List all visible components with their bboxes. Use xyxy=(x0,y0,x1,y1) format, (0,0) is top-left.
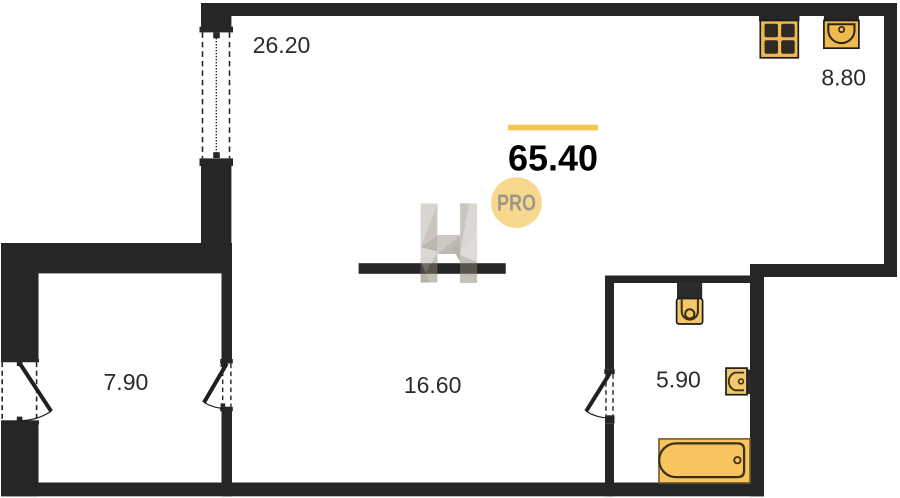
svg-text:7.90: 7.90 xyxy=(104,369,149,395)
svg-text:PRO: PRO xyxy=(497,190,536,216)
svg-text:16.60: 16.60 xyxy=(404,372,462,398)
svg-text:65.40: 65.40 xyxy=(508,138,598,179)
svg-text:5.90: 5.90 xyxy=(656,367,701,393)
svg-text:26.20: 26.20 xyxy=(253,32,311,58)
svg-text:8.80: 8.80 xyxy=(821,65,866,91)
